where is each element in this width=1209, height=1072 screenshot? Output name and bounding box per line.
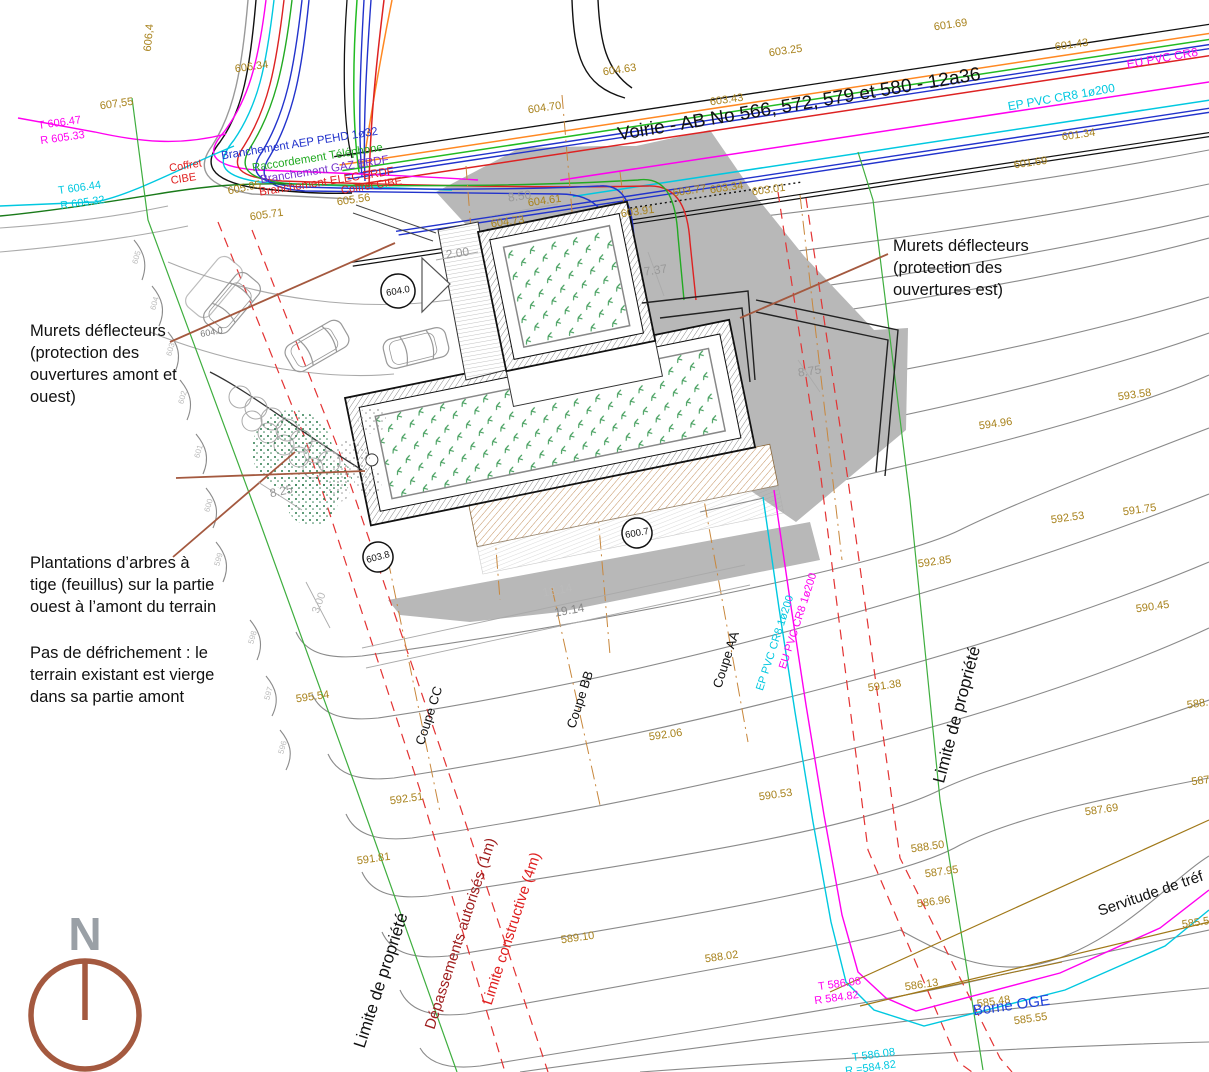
map-label: 590.45 — [1135, 599, 1170, 616]
map-label: 601.43 — [1054, 37, 1089, 54]
map-label: tige (feuillus) sur la partie — [30, 576, 214, 594]
map-label: 589.10 — [560, 930, 595, 947]
map-label: 587.69 — [1084, 802, 1119, 819]
map-label: CIBE — [170, 171, 197, 187]
map-label: 593.58 — [1117, 387, 1152, 404]
map-label: EU PVC CR8 — [1126, 45, 1200, 71]
map-label: Pas de défrichement : le — [30, 644, 208, 662]
map-label: 603.01 — [751, 182, 786, 199]
map-label: N — [68, 908, 101, 960]
map-label: Coupe BB — [563, 669, 596, 730]
map-label: 585.5 — [1181, 915, 1209, 931]
map-label: 590.53 — [758, 787, 793, 804]
map-label: ouvertures est) — [893, 281, 1003, 299]
map-label: Servitude de tréf — [1096, 868, 1206, 920]
site-plan-canvas: 606,4606.34607,55T 606.47R 605.33T 606.4… — [0, 0, 1209, 1072]
map-label: 605.71 — [249, 207, 284, 224]
tree-speckle — [252, 410, 352, 526]
map-label: 601.69 — [1013, 155, 1048, 172]
map-label: 606.34 — [234, 59, 269, 76]
map-label: 604.70 — [527, 100, 562, 117]
map-label: 588.50 — [910, 839, 945, 856]
north-arrow — [31, 961, 139, 1069]
elevation-bubble: 603.8 — [360, 539, 397, 576]
map-label: 588. — [1186, 697, 1209, 712]
map-label: R 605.32 — [60, 194, 106, 212]
map-label: 592.85 — [917, 554, 952, 571]
map-label: Coupe CC — [412, 684, 445, 746]
car — [381, 326, 450, 371]
map-label: Murets déflecteurs — [30, 322, 166, 340]
map-label: 588.02 — [704, 949, 739, 966]
map-label: ouest à l’amont du terrain — [30, 598, 216, 616]
map-label: 603.25 — [768, 43, 803, 60]
map-label: 594.96 — [978, 416, 1013, 433]
map-label: 592.53 — [1050, 510, 1085, 527]
map-label: 591.81 — [356, 851, 391, 868]
map-label: 601.69 — [933, 17, 968, 34]
map-label: 586.96 — [916, 894, 951, 911]
map-label: 585.55 — [1013, 1011, 1048, 1028]
map-label: 606,4 — [142, 24, 156, 52]
site-plan-svg: 606,4606.34607,55T 606.47R 605.33T 606.4… — [0, 0, 1209, 1072]
map-label: Voirie - AB No 566, 572, 579 et 580 - 12… — [616, 64, 982, 145]
map-label: EP PVC CR8 1ø200 — [1007, 81, 1117, 114]
map-label: Plantations d’arbres à — [30, 554, 190, 572]
map-label: Limite de propriété — [350, 910, 412, 1050]
map-label: Coupe AA — [710, 629, 742, 690]
map-label: (protection des — [893, 259, 1002, 277]
parked-cars — [182, 253, 451, 375]
car — [282, 317, 352, 375]
map-label: 605 — [131, 249, 143, 265]
map-label: Murets déflecteurs — [893, 237, 1029, 255]
map-label: 586.13 — [904, 977, 939, 994]
map-label: ouest) — [30, 388, 76, 406]
map-label: 607,55 — [99, 96, 134, 113]
map-label: 587 — [1191, 774, 1209, 788]
map-label: 604.63 — [602, 62, 637, 79]
map-label: 592.51 — [389, 791, 424, 808]
servitude-lines — [830, 820, 1209, 1006]
map-label: R 605.33 — [40, 129, 86, 147]
map-label: terrain existant est vierge — [30, 666, 214, 684]
map-label: (protection des — [30, 344, 139, 362]
map-label: 591.38 — [867, 678, 902, 695]
map-label: 587.95 — [924, 864, 959, 881]
map-label: ouvertures amont et — [30, 366, 177, 384]
map-label: dans sa partie amont — [30, 688, 185, 706]
